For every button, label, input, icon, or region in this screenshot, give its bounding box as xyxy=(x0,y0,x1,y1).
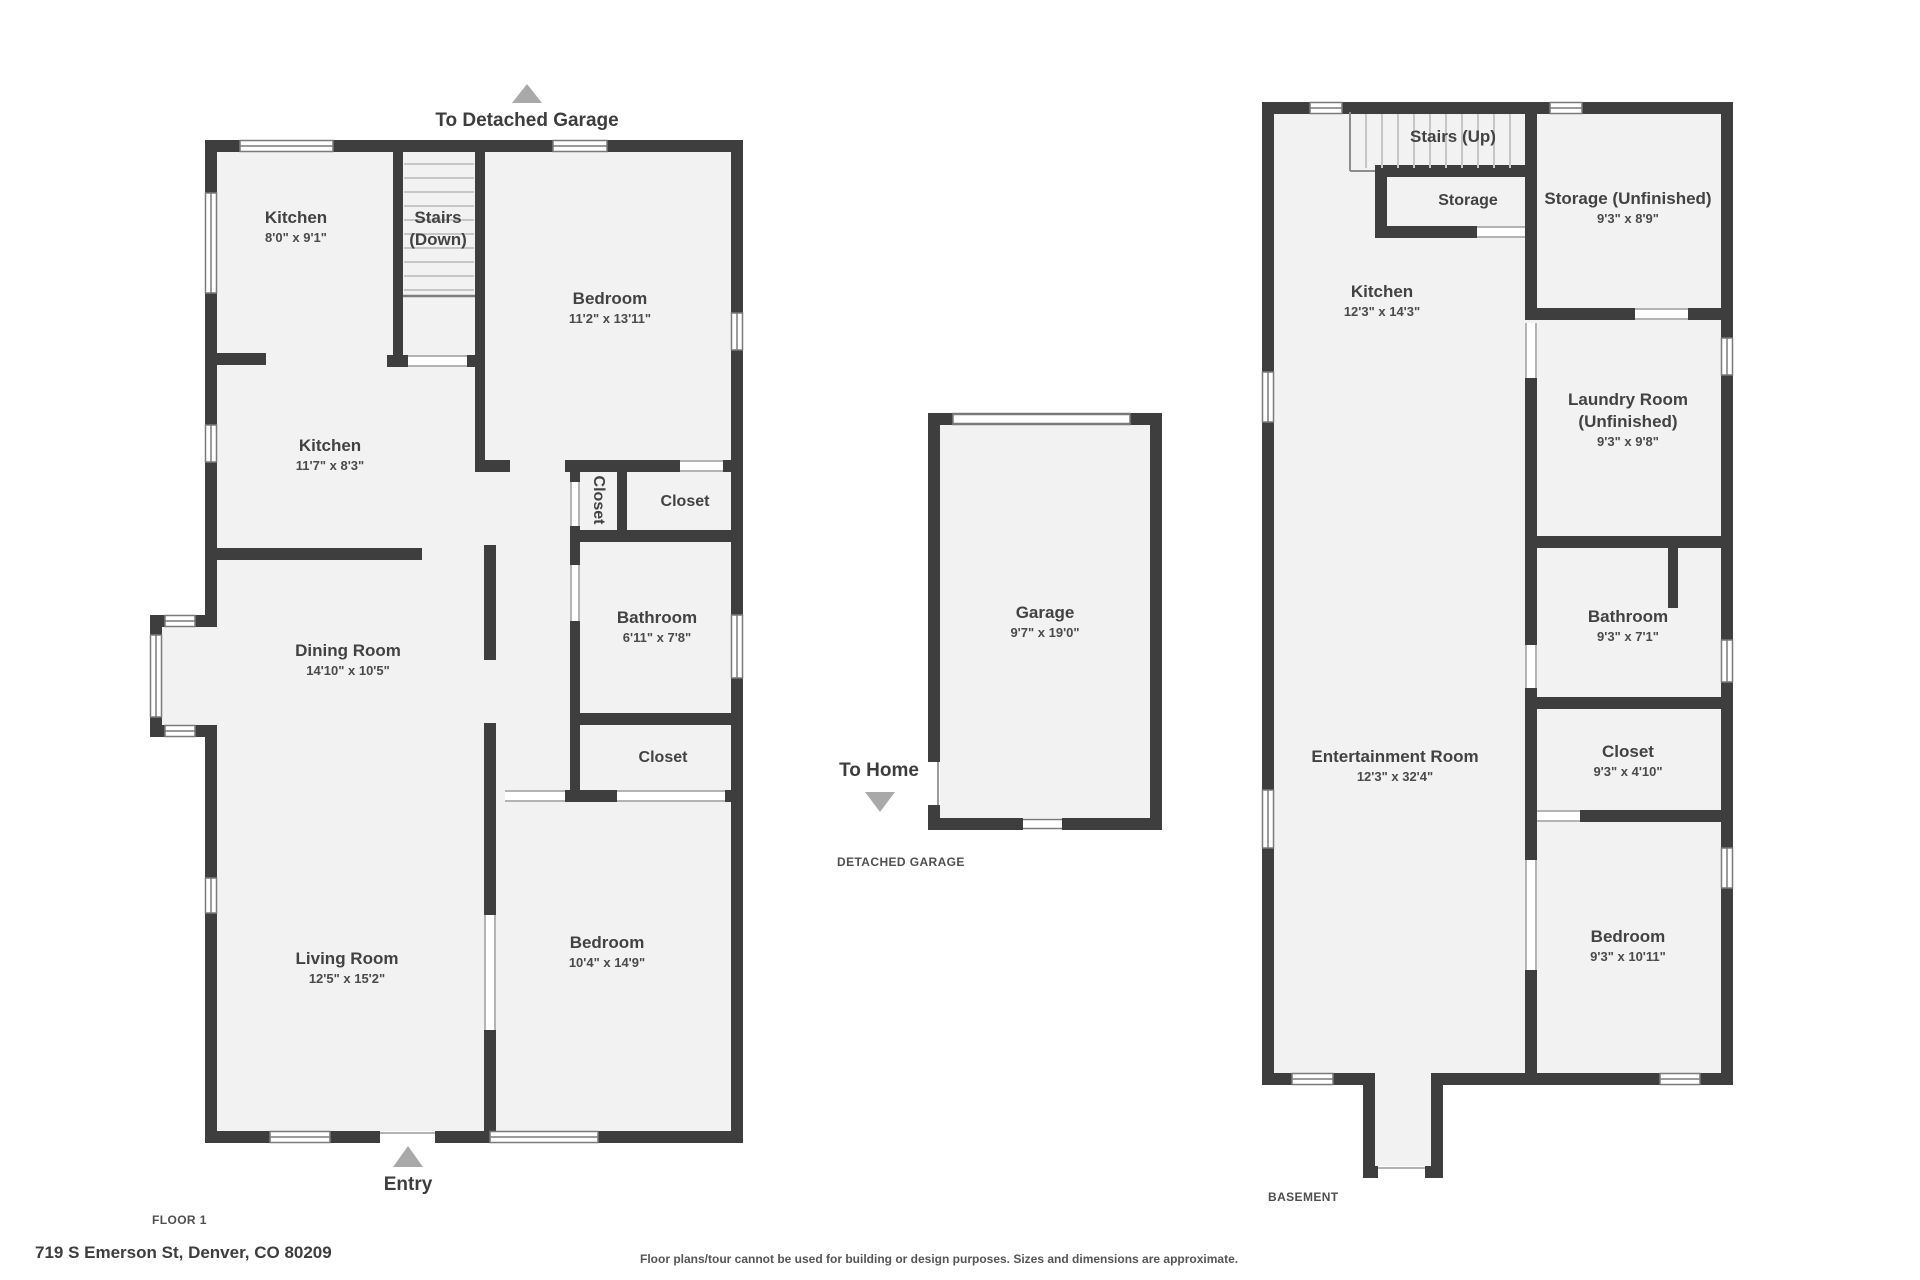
room-label-storage-unfinished: Storage (Unfinished) 9'3" x 8'9" xyxy=(1544,188,1711,229)
to-home-down-arrow-icon xyxy=(865,792,895,812)
room-label-storage: Storage xyxy=(1438,191,1498,211)
property-address: 719 S Emerson St, Denver, CO 80209 xyxy=(35,1243,332,1263)
room-label-kitchen-upper: Kitchen 8'0" x 9'1" xyxy=(265,207,327,248)
detached-garage-section-label: DETACHED GARAGE xyxy=(837,855,965,869)
room-label-basement-closet: Closet 9'3" x 4'10" xyxy=(1593,741,1662,782)
room-label-bedroom-upper: Bedroom 11'2" x 13'11" xyxy=(569,288,651,329)
to-garage-up-arrow-icon xyxy=(512,84,542,103)
room-label-closet-vertical: Closet xyxy=(588,476,608,525)
disclaimer-text: Floor plans/tour cannot be used for buil… xyxy=(640,1252,1238,1266)
room-label-laundry: Laundry Room (Unfinished) 9'3" x 9'8" xyxy=(1568,389,1688,451)
room-label-stairs-down: Stairs (Down) xyxy=(409,207,467,251)
room-label-basement-kitchen: Kitchen 12'3" x 14'3" xyxy=(1344,281,1420,322)
to-detached-garage-label: To Detached Garage xyxy=(435,110,618,132)
room-label-entertainment: Entertainment Room 12'3" x 32'4" xyxy=(1311,746,1478,787)
room-label-bedroom-lower: Bedroom 10'4" x 14'9" xyxy=(569,932,645,973)
room-label-closet-upper: Closet xyxy=(661,492,710,512)
room-label-garage: Garage 9'7" x 19'0" xyxy=(1010,602,1079,643)
room-label-living-room: Living Room 12'5" x 15'2" xyxy=(296,948,399,989)
room-label-stairs-up: Stairs (Up) xyxy=(1410,126,1496,148)
room-label-closet-lower: Closet xyxy=(639,748,688,768)
entry-up-arrow-icon xyxy=(393,1146,423,1167)
floorplan-sheet: To Detached Garage Kitchen 8'0" x 9'1" S… xyxy=(0,0,1920,1280)
room-label-kitchen-lower: Kitchen 11'7" x 8'3" xyxy=(296,435,364,476)
entry-label: Entry xyxy=(384,1174,433,1196)
room-label-basement-bathroom: Bathroom 9'3" x 7'1" xyxy=(1588,606,1668,647)
to-home-label: To Home xyxy=(839,760,919,782)
floor1-section-label: FLOOR 1 xyxy=(152,1213,207,1227)
room-label-basement-bedroom: Bedroom 9'3" x 10'11" xyxy=(1590,926,1666,967)
basement-section-label: BASEMENT xyxy=(1268,1190,1339,1204)
room-label-bathroom: Bathroom 6'11" x 7'8" xyxy=(617,607,697,648)
room-label-dining-room: Dining Room 14'10" x 10'5" xyxy=(295,640,401,681)
